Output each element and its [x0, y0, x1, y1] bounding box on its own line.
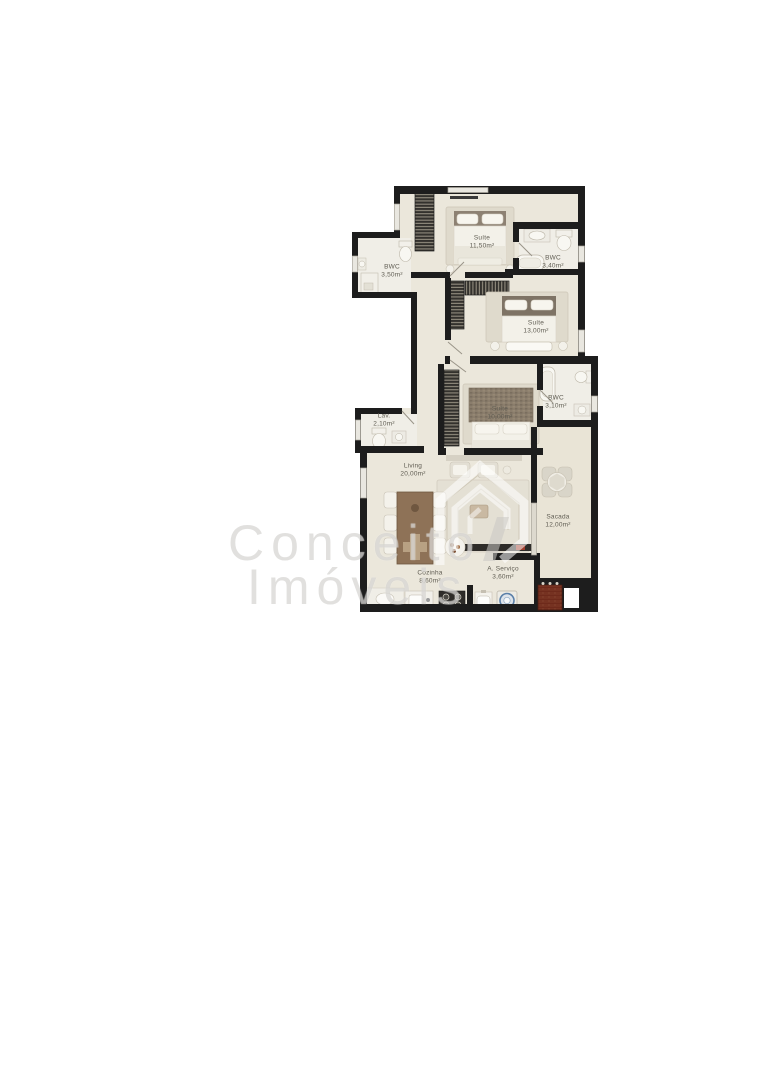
room-label-sacada: Sacada 12,00m² [545, 514, 570, 531]
room-label-suite-1300: Suíte 13,00m² [523, 320, 548, 337]
room-label-bwc-350: BWC 3,50m² [381, 264, 402, 281]
nightstand [559, 342, 568, 351]
floor-plan-page: Conceito Imóveis Suíte 11,50m² BWC 3,50m… [0, 0, 763, 1080]
room-label-suite-1000: Suíte 10,00m² [487, 406, 512, 423]
nightstand [446, 265, 454, 273]
toilet-icon [399, 241, 412, 262]
room-label-lav: Lav. 2,10m² [373, 413, 394, 430]
room-label-a-servico: A. Serviço 3,60m² [487, 566, 519, 583]
grill-icon [538, 585, 562, 610]
room-label-bwc-310: BWC 3,10m² [545, 395, 566, 412]
wardrobe-icon [415, 193, 434, 251]
toilet-icon [575, 371, 592, 383]
room-label-bwc-340: BWC 3,40m² [542, 255, 563, 272]
wardrobe-icon [449, 281, 464, 329]
room-label-living: Living 20,00m² [400, 463, 425, 480]
toilet-icon [372, 428, 386, 449]
shaft [564, 588, 579, 608]
shower-icon [361, 273, 378, 293]
wardrobe-icon [444, 370, 459, 446]
watermark-line-2: Imóveis [247, 558, 468, 616]
curtain-rail [450, 196, 478, 199]
nightstand [491, 342, 500, 351]
toilet-icon [556, 230, 572, 251]
room-label-suite-1150: Suíte 11,50m² [470, 235, 495, 252]
bathtub-icon [516, 255, 544, 271]
